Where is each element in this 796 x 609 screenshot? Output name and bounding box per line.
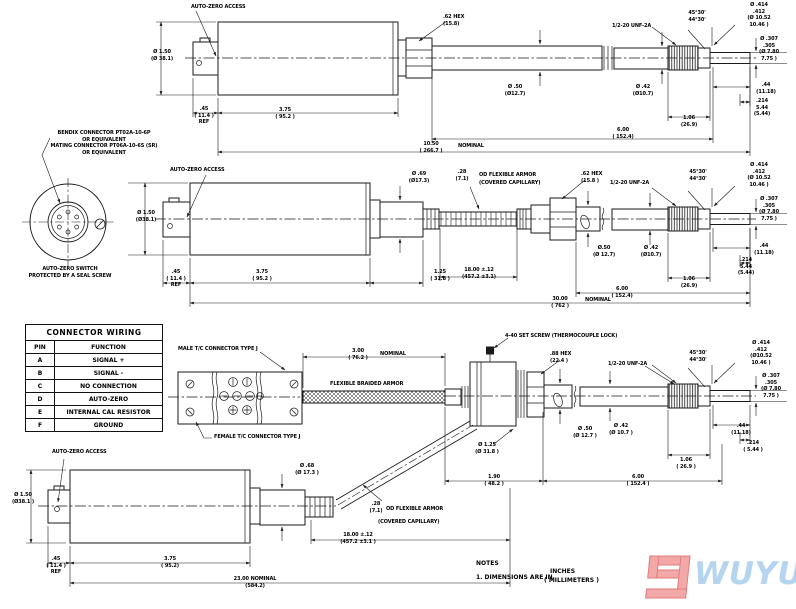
dim-10-50-label: 10.50 ( 266.7 ) — [408, 141, 454, 154]
table-title: CONNECTOR WIRING — [26, 325, 163, 341]
auto-zero-switch-caption: AUTO-ZERO SWITCH PROTECTED BY A SEAL SCR… — [12, 266, 128, 279]
hex-62-label: .62 HEX (15.8) — [443, 14, 464, 27]
dim-1-06-label: 1.06 (26.9) — [671, 115, 707, 128]
dim-214-label: .214 5.44 (5.44) — [726, 257, 766, 277]
table-row: CNO CONNECTION — [26, 380, 163, 393]
dim-44-label: .44 (11.18) — [724, 423, 758, 436]
hex-62-label: .62 HEX (15.8 ) — [581, 171, 602, 184]
technical-drawing-linework — [0, 0, 796, 609]
armor-od-label: .28 (7.1) — [364, 501, 388, 514]
braided-armor-label: FLEXIBLE BRAIDED ARMOR — [330, 381, 403, 388]
pin-cell: D — [26, 393, 55, 406]
col-header-pin: PIN — [26, 341, 55, 354]
dim-44-label: .44 (11.18) — [748, 82, 784, 95]
armor-covered-label: (COVERED CAPILLARY) — [378, 519, 439, 526]
thread-spec-label: 1/2-20 UNF-2A — [608, 361, 647, 368]
function-cell: SIGNAL + — [55, 354, 163, 367]
table-row: BSIGNAL - — [26, 367, 163, 380]
dim-6-00-label: 6.00 ( 152.4 ) — [616, 474, 660, 487]
pin-cell: C — [26, 380, 55, 393]
notes-title: NOTES — [476, 560, 499, 567]
dim-3-75-label: 3.75 ( 95.2) — [150, 556, 190, 569]
dia-307-label: Ø .307 .305 (Ø 7.80 7.75 ) — [746, 373, 796, 399]
function-cell: NO CONNECTION — [55, 380, 163, 393]
armor-type-label: OD FLEXIBLE ARMOR — [386, 506, 443, 513]
dia-42-label: Ø .42 (Ø10.7) — [626, 84, 660, 97]
dim-1-06-label: 1.06 (26.9) — [671, 276, 707, 289]
bendix-connector-label: BENDIX CONNECTOR PT02A-10-6P OR EQUIVALE… — [28, 130, 180, 156]
dim-3-75-label: 3.75 ( 95.2 ) — [265, 107, 305, 120]
table-row: FGROUND — [26, 419, 163, 432]
dia-50-label: Ø .50 (Ø12.7) — [498, 84, 532, 97]
dim-45-ref-label: .45 ( 11.4 ) REF — [162, 269, 190, 289]
auto-zero-access-label: AUTO-ZERO ACCESS — [52, 449, 107, 456]
dim-1-06-label: 1.06 ( 26.9 ) — [666, 457, 706, 470]
dia-42-label: Ø .42 (Ø 10.7 ) — [602, 423, 640, 436]
connector-wiring-table: CONNECTOR WIRING PIN FUNCTION ASIGNAL + … — [25, 324, 163, 432]
female-tc-connector-label: FEMALE T/C CONNECTOR TYPE J — [214, 434, 300, 441]
nominal-label: NOMINAL — [458, 143, 484, 150]
chamfer-angle-label: 45°30' 44°30' — [681, 10, 713, 23]
view1-long-rigid-stem — [156, 11, 787, 156]
dim-45-ref-label: .45 ( 11.4 ) REF — [190, 106, 218, 126]
dia-1-50-label: Ø 1.50 (Ø38.1) — [130, 210, 162, 223]
dim-45-ref-label: .45 ( 11.4 ) REF — [42, 556, 70, 576]
auto-zero-access-label: AUTO-ZERO ACCESS — [191, 4, 246, 11]
table-row: EINTERNAL CAL RESISTOR — [26, 406, 163, 419]
drawing-sheet: AUTO-ZERO ACCESS Ø 1.50 (Ø 38.1) .45 ( 1… — [0, 0, 796, 609]
pin-cell: E — [26, 406, 55, 419]
function-cell: GROUND — [55, 419, 163, 432]
wuyue-logo-mark — [646, 556, 690, 598]
thread-spec-label: 1/2-20 UNF-2A — [612, 23, 651, 30]
dim-23-00-label: 23.00 NOMINAL (584.2) — [212, 576, 298, 589]
dia-1-50-label: Ø 1.50 (Ø38.1 ) — [6, 492, 40, 505]
armor-covered-label: (COVERED CAPILLARY) — [479, 180, 540, 187]
dia-69-label: Ø .69 (Ø17.3) — [401, 171, 437, 184]
dim-18-00-label: 18.00 ±.12 (457.2 ±3.1 ) — [326, 532, 390, 545]
dim-6-00-label: 6.00 ( 152.4) — [603, 127, 643, 140]
wuyue-brand-text: WUYUE — [694, 556, 796, 592]
dim-18-00-label: 18.00 ±.12 (457.2 ±3.1) — [450, 267, 508, 280]
dim-44-label: .44 (11.18) — [746, 243, 782, 256]
set-screw-label: 4-40 SET SCREW (THERMOCOUPLE LOCK) — [505, 333, 617, 340]
dia-1-25-label: Ø 1.25 (Ø 31.8 ) — [468, 442, 506, 455]
notes-units-inches: INCHES — [550, 568, 575, 575]
dia-414-label: Ø .414 .412 (Ø 10.52 10.46 ) — [733, 2, 785, 28]
dim-214-label: .214 ( 5.44 ) — [736, 440, 770, 453]
bendix-connector-face — [22, 138, 114, 266]
function-cell: AUTO-ZERO — [55, 393, 163, 406]
dia-50-label: Ø.50 (Ø 12.7) — [588, 245, 620, 258]
dia-1-50-label: Ø 1.50 (Ø 38.1) — [146, 49, 178, 62]
chamfer-angle-label: 45°30' 44°30' — [682, 169, 714, 182]
dia-414-label: Ø .414 .412 (Ø 10.52 10.46 ) — [733, 162, 785, 188]
pin-cell: F — [26, 419, 55, 432]
nominal-label: NOMINAL — [380, 351, 406, 358]
pin-cell: B — [26, 367, 55, 380]
function-cell: INTERNAL CAL RESISTOR — [55, 406, 163, 419]
chamfer-angle-label: 45°30' 44°30' — [682, 350, 714, 363]
male-tc-connector-label: MALE T/C CONNECTOR TYPE J — [178, 346, 258, 353]
thread-spec-label: 1/2-20 UNF-2A — [610, 180, 649, 187]
notes-units-mm: ( MILLIMETERS ) — [544, 577, 599, 584]
dim-30-00-label: 30.00 ( 762 ) — [538, 296, 582, 309]
notes-item-1: 1. DIMENSIONS ARE IN — [476, 574, 553, 581]
dim-3-00-label: 3.00 ( 76.2 ) — [338, 348, 378, 361]
auto-zero-access-label: AUTO-ZERO ACCESS — [170, 167, 225, 174]
dia-307-label: Ø .307 .305 (Ø 7.80 7.75 ) — [744, 36, 794, 62]
dim-6-00-label: 6.00 ( 152.4) — [602, 286, 642, 299]
pin-cell: A — [26, 354, 55, 367]
hex-88-label: .88 HEX (22.4 ) — [550, 351, 571, 364]
function-cell: SIGNAL - — [55, 367, 163, 380]
table-row: DAUTO-ZERO — [26, 393, 163, 406]
dia-42-label: Ø .42 (Ø10.7) — [635, 245, 667, 258]
dim-1-90-label: 1.90 ( 48.2 ) — [474, 474, 514, 487]
dia-50-label: Ø .50 (Ø 12.7 ) — [566, 426, 604, 439]
col-header-function: FUNCTION — [55, 341, 163, 354]
armor-type-label: OD FLEXIBLE ARMOR — [479, 172, 536, 179]
table-row: ASIGNAL + — [26, 354, 163, 367]
dim-3-75-label: 3.75 ( 95.2 ) — [242, 269, 282, 282]
dia-307-label: Ø .307 .305 (Ø 7.80 7.75 ) — [744, 196, 794, 222]
dia-68-label: Ø .68 (Ø 17.3 ) — [288, 463, 326, 476]
armor-od-label: .28 (7.1) — [450, 169, 474, 182]
dim-214-label: .214 5.44 (5.44) — [742, 98, 782, 118]
dia-414-label: Ø .414 .412 (Ø10.52 10.46 ) — [735, 340, 787, 366]
